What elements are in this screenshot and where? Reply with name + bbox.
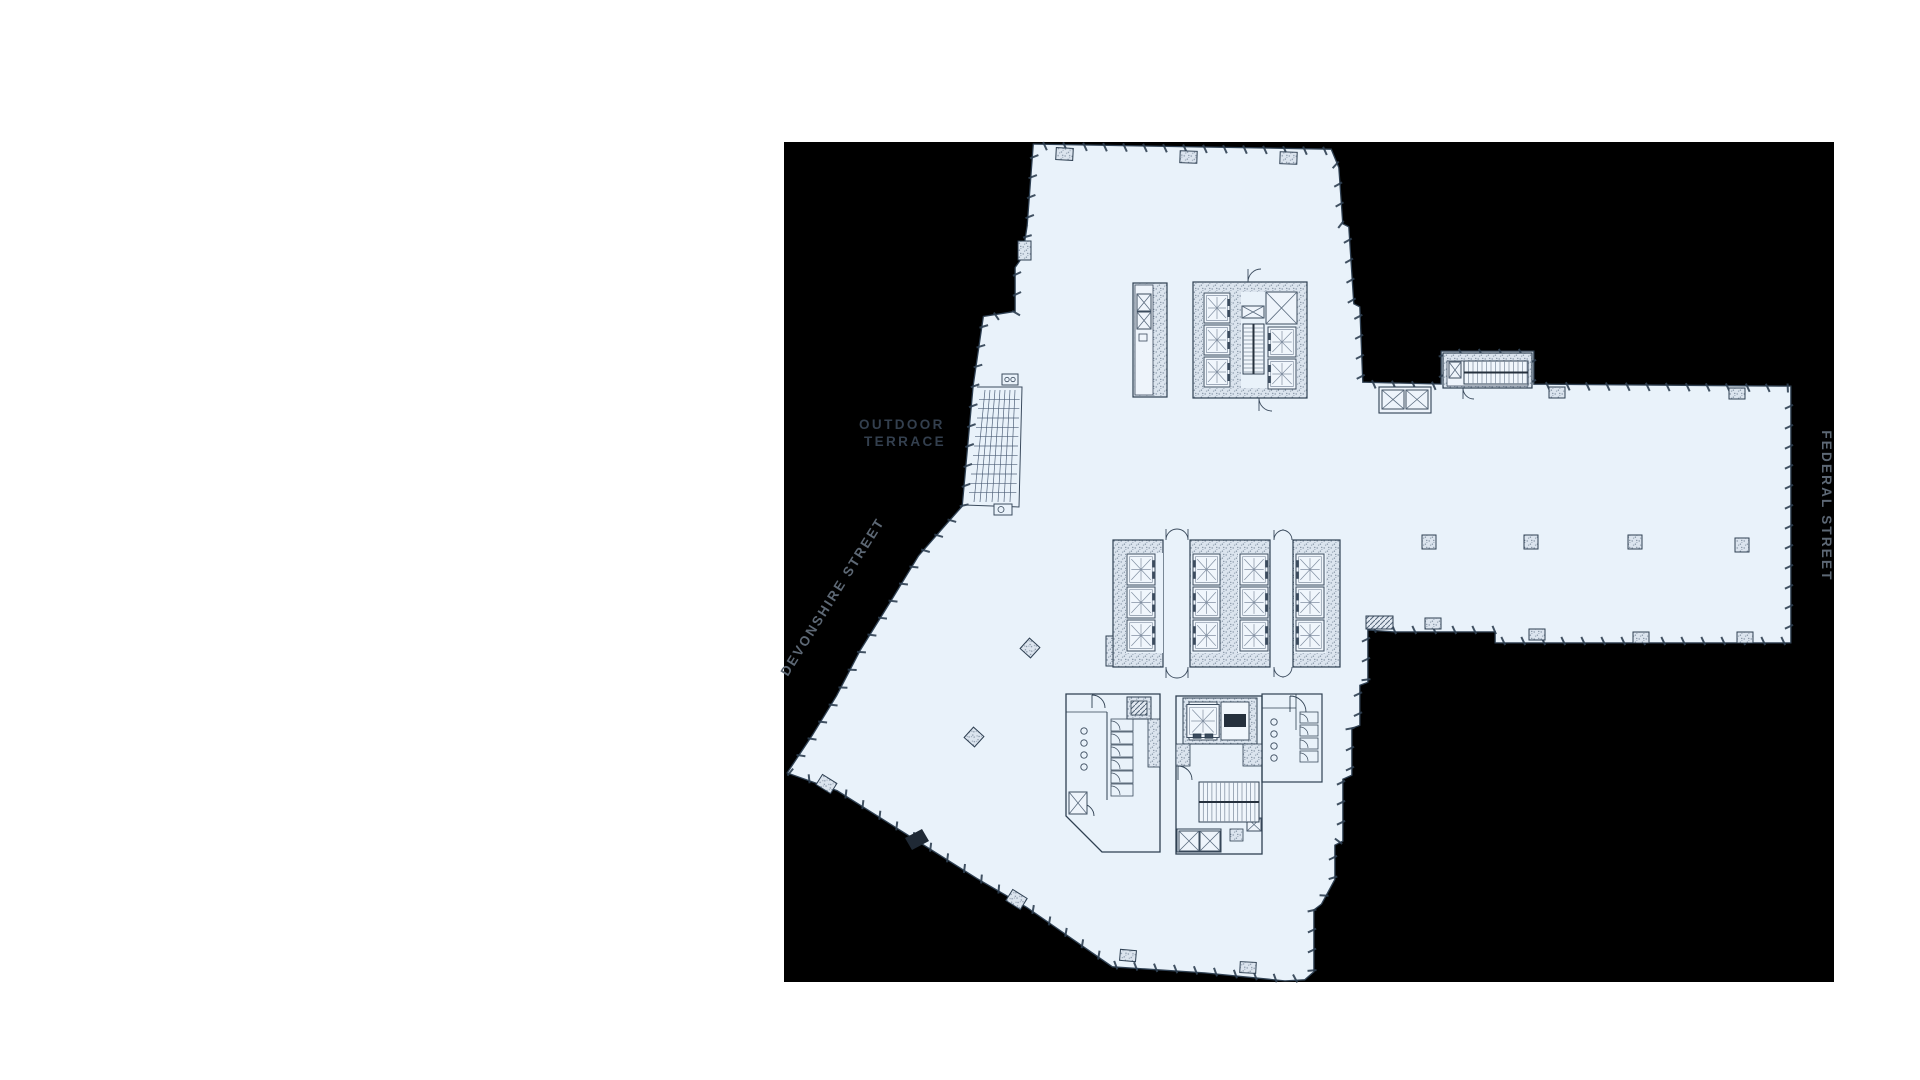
elevator-cab xyxy=(1240,620,1268,651)
mullion-tick xyxy=(947,853,948,862)
mullion-tick xyxy=(964,864,965,873)
service-elevator xyxy=(1137,312,1151,329)
dumbwaiter xyxy=(1242,306,1264,318)
mullion-tick xyxy=(896,821,897,830)
mullion-tick xyxy=(879,811,880,820)
shaft xyxy=(1200,831,1220,851)
elevator-cab xyxy=(1204,325,1230,355)
upper-core xyxy=(1133,269,1307,411)
elevator-cab xyxy=(1204,293,1230,323)
wall-column xyxy=(1729,388,1745,399)
hoistway xyxy=(1406,390,1428,409)
elevator-cab xyxy=(1240,587,1268,618)
mullion-tick xyxy=(862,800,863,809)
wall-column xyxy=(1549,387,1565,398)
elevator-cab xyxy=(1296,587,1324,618)
mullion-tick xyxy=(899,584,908,585)
federal-street-label: FEDERAL STREET xyxy=(1819,430,1834,581)
wall-column xyxy=(1425,618,1441,629)
mullion-tick xyxy=(909,566,918,567)
elevator-cab xyxy=(1268,327,1296,357)
mullion-tick xyxy=(889,601,898,602)
wall-column xyxy=(1056,148,1074,161)
elevator-cab xyxy=(1204,357,1230,387)
wall-column xyxy=(1120,949,1137,961)
hatch-block xyxy=(1366,616,1393,629)
wall-column xyxy=(1633,632,1649,643)
elevator-cab-solid xyxy=(1224,714,1246,727)
elevator-cab xyxy=(1268,359,1296,389)
mullion-tick xyxy=(1320,895,1329,896)
elevator-cab xyxy=(1193,620,1220,651)
elevator-cab xyxy=(1127,554,1155,585)
mullion-tick xyxy=(818,721,827,722)
floor-plan-scene: OUTDOOR TERRACE DEVONSHIRE STREET FEDERA… xyxy=(0,0,1920,1080)
elevator-cab xyxy=(1193,554,1220,585)
mullion-tick xyxy=(809,774,810,783)
column xyxy=(1524,535,1538,549)
mullion-tick xyxy=(878,618,887,619)
wall-column xyxy=(1280,152,1297,165)
shaft xyxy=(1179,831,1199,851)
wall-column xyxy=(1018,241,1031,260)
wall-column xyxy=(1240,962,1257,974)
mullion-tick xyxy=(1308,970,1317,971)
elevator-cab xyxy=(1193,587,1220,618)
mullion-tick xyxy=(981,875,982,884)
column xyxy=(1735,538,1749,552)
elevator-cab xyxy=(1127,587,1155,618)
shaft xyxy=(1449,362,1461,378)
elevator-cab xyxy=(1240,554,1268,585)
freight-elevator xyxy=(1069,792,1087,814)
elevator-cab xyxy=(1296,554,1324,585)
mullion-tick xyxy=(930,843,931,852)
mid-elevator-banks xyxy=(1106,529,1340,678)
mullion-tick xyxy=(796,755,805,756)
wall-column xyxy=(1180,151,1197,164)
wall-column xyxy=(1737,632,1753,643)
wall-column xyxy=(1529,629,1545,640)
mullion-tick xyxy=(808,738,817,739)
elevator-cab xyxy=(1127,620,1155,651)
vacant-shaft xyxy=(1266,292,1297,324)
mullion-tick xyxy=(867,635,876,636)
hoistway xyxy=(1382,390,1404,409)
mullion-tick xyxy=(829,704,838,705)
mullion-tick xyxy=(857,652,866,653)
column xyxy=(1422,535,1436,549)
elevator-cab xyxy=(1187,705,1219,738)
column xyxy=(1628,535,1642,549)
elevator-cab xyxy=(1296,620,1324,651)
mullion-tick xyxy=(1362,679,1371,680)
mullion-tick xyxy=(998,885,999,894)
mullion-tick xyxy=(845,790,846,799)
service-elevator xyxy=(1137,294,1151,311)
